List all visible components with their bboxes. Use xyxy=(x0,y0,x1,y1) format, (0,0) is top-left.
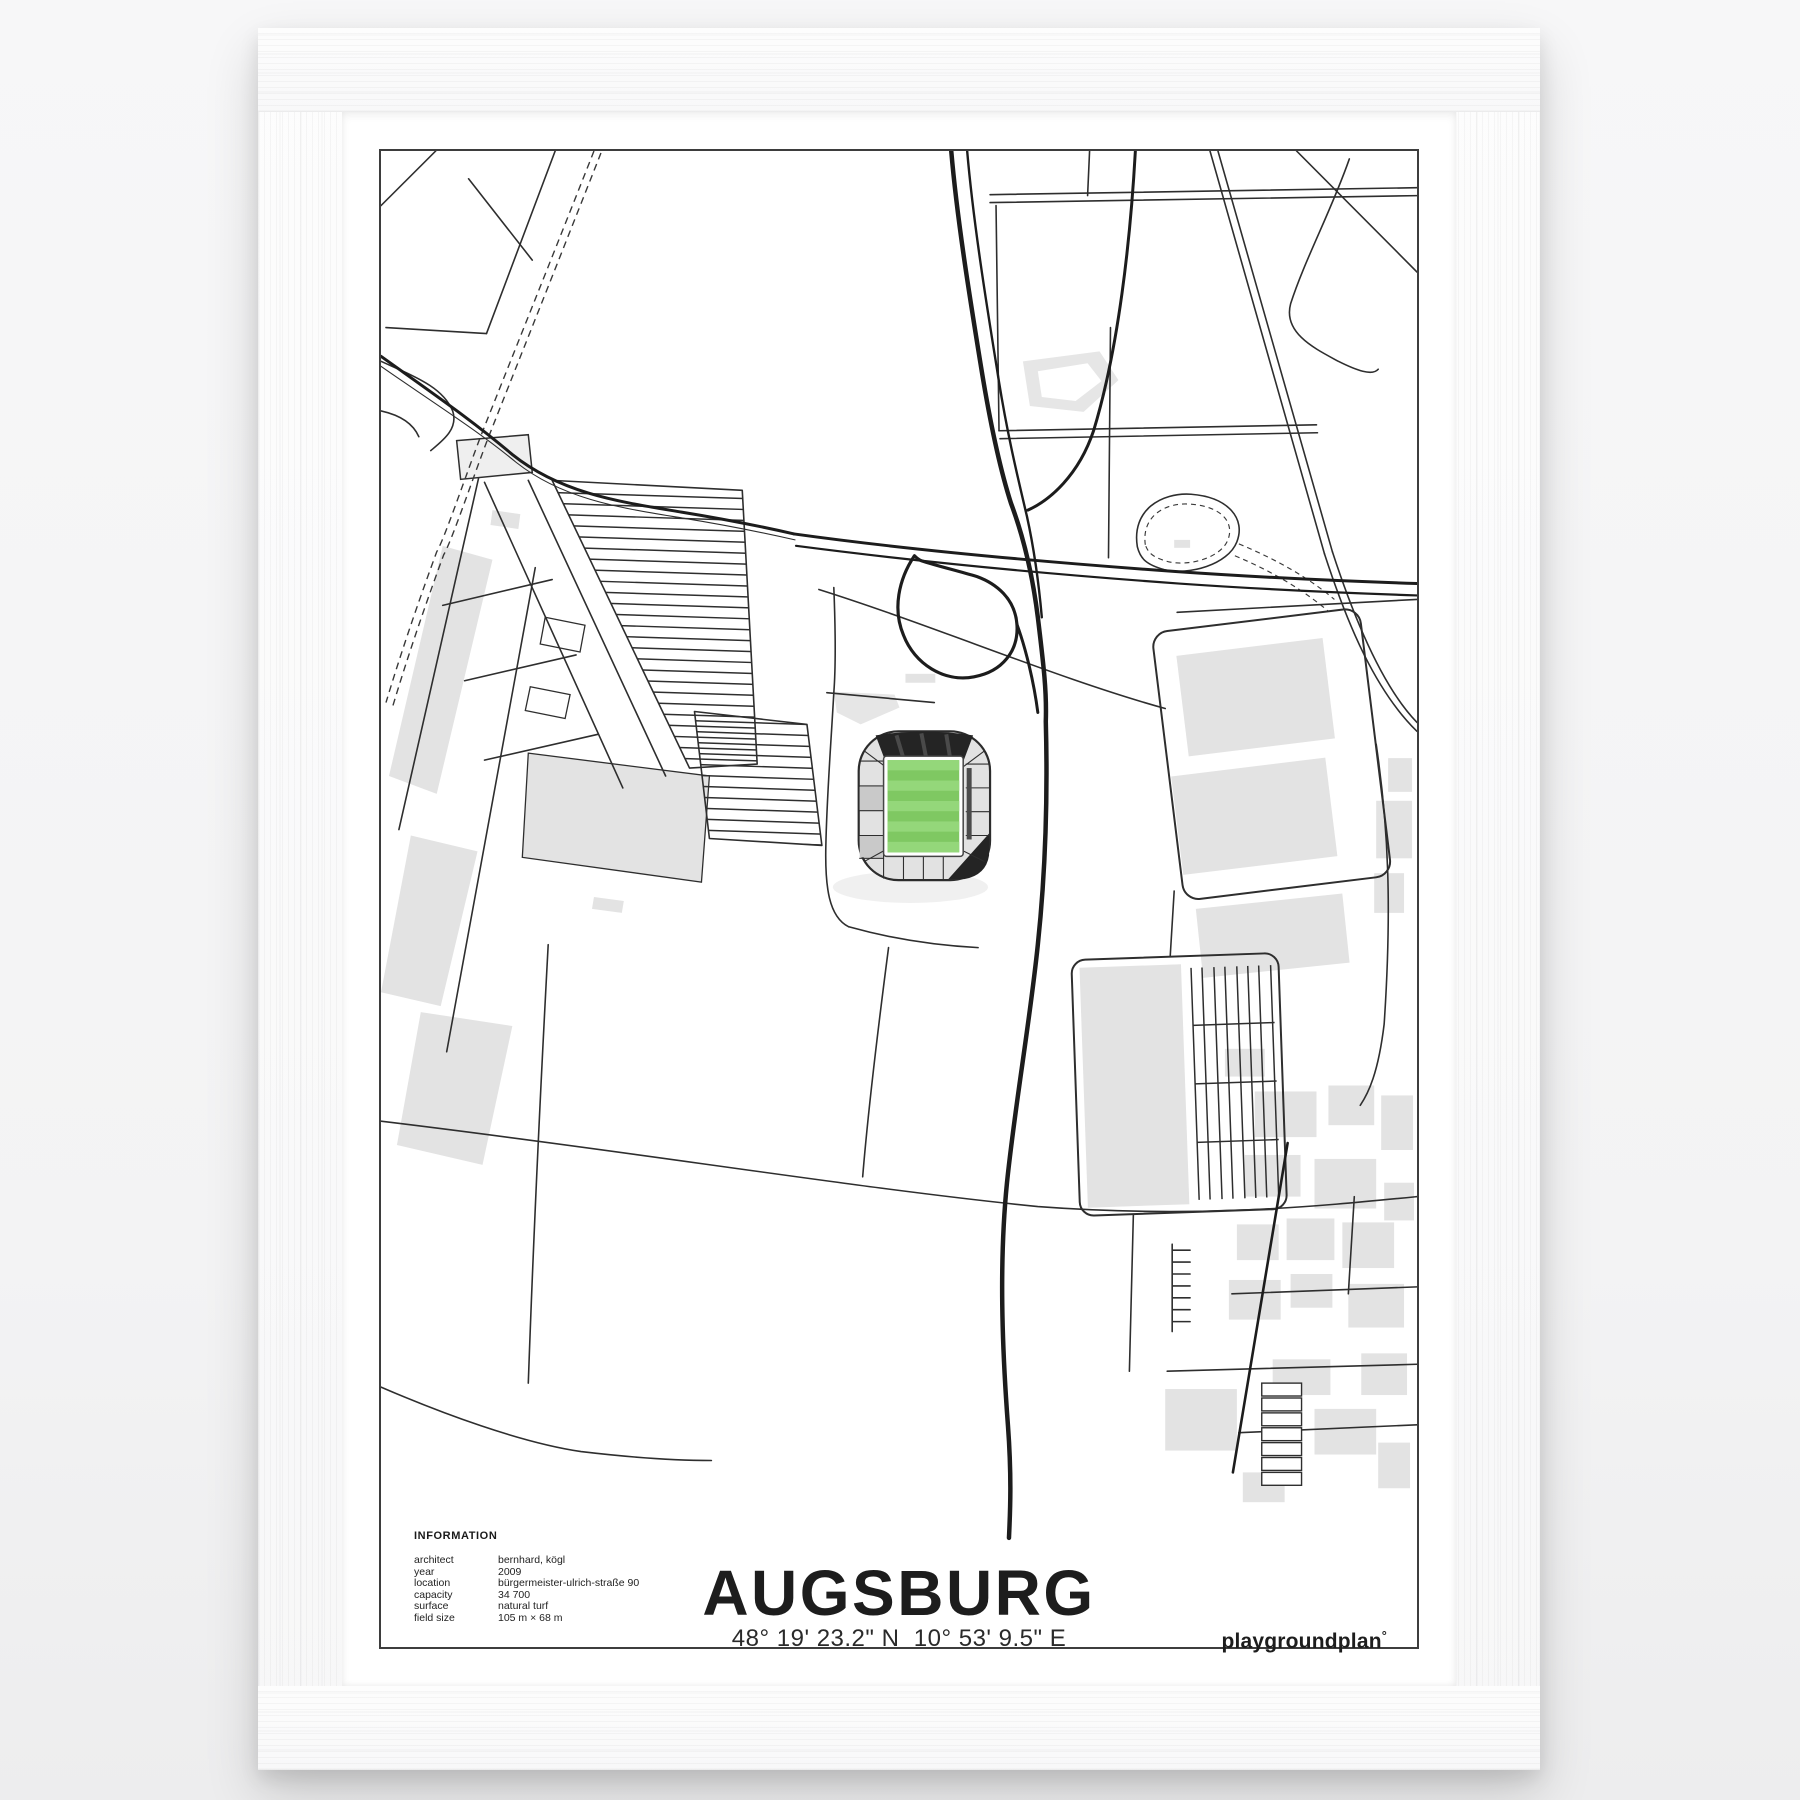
frame-bottom-edge xyxy=(258,1686,1540,1770)
poster-title: AUGSBURG xyxy=(381,1556,1417,1630)
brand-degree-mark: ° xyxy=(1382,1629,1387,1643)
product-photo: INFORMATION architectbernhard, kögl year… xyxy=(0,0,1800,1800)
brand-name: playgroundplan xyxy=(1221,1630,1381,1653)
frame-top-edge xyxy=(258,28,1540,112)
brand-logo: playgroundplan° xyxy=(1221,1629,1387,1654)
poster: INFORMATION architectbernhard, kögl year… xyxy=(379,149,1419,1649)
information-heading: INFORMATION xyxy=(414,1530,639,1542)
mat: INFORMATION architectbernhard, kögl year… xyxy=(342,112,1456,1686)
poster-text-overlay: INFORMATION architectbernhard, kögl year… xyxy=(381,151,1417,1647)
picture-frame: INFORMATION architectbernhard, kögl year… xyxy=(258,28,1540,1770)
